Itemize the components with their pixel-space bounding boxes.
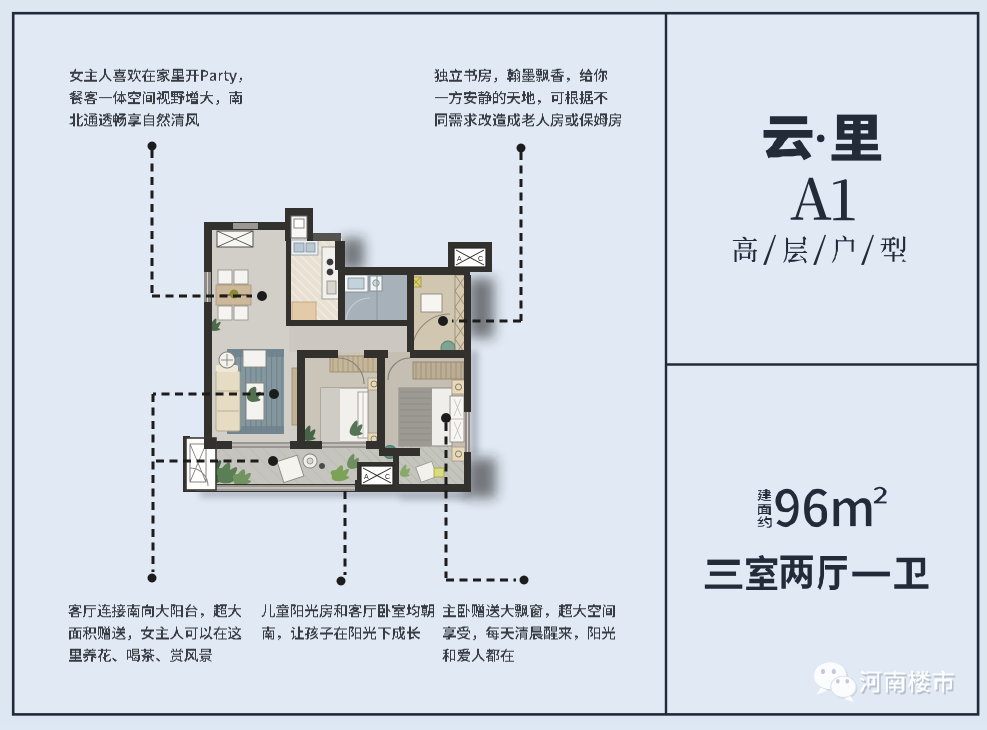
svg-text:A: A (364, 474, 369, 481)
svg-text:C: C (478, 256, 483, 263)
svg-text:C: C (385, 474, 390, 481)
svg-text:A: A (457, 256, 462, 263)
